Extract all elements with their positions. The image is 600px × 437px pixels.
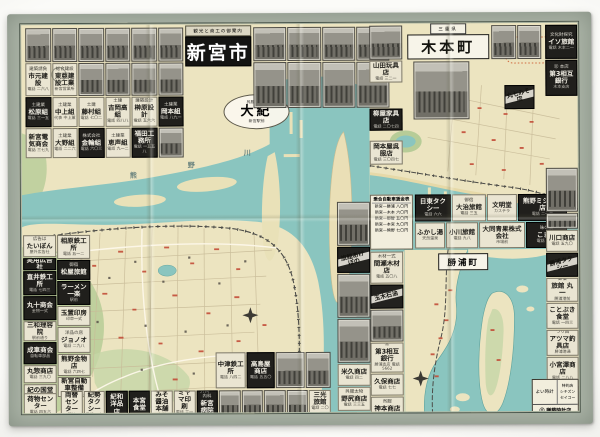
ad-tile: 外科・内科 新宮病院 電話 六八 (196, 390, 218, 413)
ad-tile: 岡本屋呉服店 電話 三〇四七 (370, 141, 403, 165)
ad-tile (322, 62, 355, 108)
ad-tile: 高島屋商店 電話 五五〇 (247, 352, 275, 388)
ad-tile: 文明堂 カステラ (487, 194, 517, 221)
ad-subtext: 自転車部品 (30, 354, 50, 359)
ad-title: 新宮電気商会 (28, 134, 50, 148)
ad-tile (158, 28, 184, 62)
daiki-bottom-text: 新宮駅前 (249, 118, 265, 124)
ad-tile (253, 27, 286, 61)
katsuura-town-label: 勝浦町 (438, 253, 488, 270)
pond (158, 265, 176, 276)
map-sheet: 勝浦町 観光と商工の御案内 新宮市 三重県 木本町 呉服・洋品 大紀 新宮駅前 … (7, 12, 593, 427)
ad-tile: ふかし湯 天然温泉 (415, 222, 445, 248)
ad-subtext: 電話 九八 (453, 236, 470, 241)
stamp-icon (51, 67, 66, 82)
ad-subtext: 電話 三一五 (28, 116, 49, 121)
ad-tile: 福田工務所 電話 一五五八 (132, 128, 158, 158)
ad-title: 小宮澤商店 (549, 361, 577, 375)
ad-title: 三和理容院 (25, 322, 54, 336)
ad-title: 玉木石油 (374, 291, 399, 303)
ad-subtext: 電話 二〇七四 (373, 124, 398, 129)
ad-subtext: 電話 三二一 (375, 76, 396, 81)
ad-tile (25, 28, 51, 62)
center-ad-strip-left: 旅館あけぼの 米久商店 電話 四二 呉服太物 野尻商店 電話 三三五 カバン 新… (337, 202, 371, 414)
ad-subtext: 電話 九一二 (107, 146, 128, 151)
bus-fare-table-ad: 乗合自動車賃金表 新宮—勝浦 八〇円 新宮—木本 六〇円 新宮—那智 五〇円 新… (370, 195, 413, 250)
ad-tile (369, 26, 402, 60)
ad-tile: 土建 吉岡高組 電話 四八八 (105, 97, 131, 127)
ad-subtext: 電話 一四三 (552, 321, 573, 326)
kimoto-title-block: 三重県 木本町 (407, 23, 489, 59)
ad-tile: ラーメン一楽 駅前 (57, 281, 90, 305)
ad-subtext: 勝浦港前 (554, 297, 570, 302)
ad-subtext: 新宮営業所 (55, 87, 75, 92)
contractor-ads-row2: 新宮電気商会 電話 三七九 土建業 大野組 電話 二二六 株式会社 金輪組 電話… (26, 128, 184, 159)
kimoto-photo-ads-right (491, 25, 541, 59)
ad-subtext: 電話 五一二 (63, 252, 84, 257)
ad-tile (337, 202, 370, 246)
ad-tile: 柳屋家具店 電話 二〇七四 (370, 109, 403, 131)
ad-kicker: 文化財探究 (550, 34, 573, 39)
kimoto-title-kicker: 三重県 (430, 23, 466, 34)
ad-subtext: 電話 二六八 (28, 87, 49, 92)
ad-title: ラーメン一楽 (59, 284, 88, 298)
map-content: 勝浦町 観光と商工の御案内 新宮市 三重県 木本町 呉服・洋品 大紀 新宮駅前 … (21, 23, 579, 413)
ad-tile: 小川旅館 電話 九八 (446, 222, 478, 248)
ad-tile: カバン 新宮鞄店 (338, 412, 371, 414)
ad-tile (78, 63, 104, 96)
ad-tile: ミヤマ印刷 電話 三一〇 (174, 390, 196, 413)
ad-tile: 土建業 松原組 電話 三一五 (25, 97, 51, 127)
ad-tile (306, 352, 331, 388)
ad-subtext: 金物一式 (32, 309, 48, 314)
ad-tile: 日東タクシー 電話 六六 (415, 194, 451, 221)
ad-tile (287, 390, 309, 413)
ad-tile: 両替センター 駅前 (61, 391, 83, 413)
ad-subtext: 電話 六四七 (64, 370, 85, 375)
ad-subtext: 駅前通り (32, 336, 48, 341)
ad-subtext: 電話 五五〇 (250, 375, 271, 380)
ad-title: 紀勢タクシー (85, 392, 103, 413)
ad-title: 柳屋家具店 (372, 110, 401, 124)
ad-title: 旅館あけぼの (338, 250, 369, 270)
ad-title: 勝浦タクシー (547, 255, 577, 274)
ad-subtext: 電話 五六六 (134, 119, 155, 124)
ad-tile (105, 28, 131, 62)
ad-tile: 直井鉄工所 電話 七四三 (23, 271, 56, 295)
ad-subtext: 電話 二九八 (63, 344, 84, 349)
watch-shop-corner-ad: よい時計 特約店 シチズン セイコー ㊂ 謙藤時計店 (532, 379, 579, 413)
ad-tile: 紀和洋品店 (106, 391, 128, 413)
kimoto-diagonal-ad: 丸七みそ店 (504, 85, 534, 109)
ad-kicker: 外科・内科 (198, 390, 216, 400)
ad-tile (337, 274, 370, 318)
ad-kicker: 土建 (113, 100, 122, 105)
contractor-ads-row: 土建業 松原組 電話 三一五 土建業 中上組 代表 中上薫 土建 藤村組 電話 … (25, 97, 183, 128)
ad-tile (491, 25, 516, 59)
ad-kicker: 御宿 (69, 264, 78, 269)
map-frame: 勝浦町 観光と商工の御案内 新宮市 三重県 木本町 呉服・洋品 大紀 新宮駅前 … (19, 21, 581, 415)
ad-kicker: ㊂ (385, 344, 390, 349)
publisher-line: ㊂ 謙藤時計店 (533, 404, 578, 413)
ad-tile: 久保商店 電話 七七 (371, 374, 404, 396)
ad-tile (131, 28, 157, 62)
bottom-ad-cluster: 中津鉄工所 電話 八四二 高島屋商店 電話 五五〇 (216, 352, 331, 389)
river-label-char: 川 (244, 148, 251, 158)
ad-kicker: 建築請負 (29, 68, 47, 73)
ad-subtext: 勝浦港通 (555, 350, 571, 355)
river-label-char: 熊 (130, 171, 137, 181)
ad-tile: 広告は たいぼん 屋外広告社 (23, 235, 56, 257)
ad-subtext: 印章一式 (66, 317, 82, 322)
ad-tile: 土建業 恵声組 電話 九一二 (105, 128, 131, 158)
ad-subtext: 電話 五九〇 (551, 242, 572, 247)
ad-tile: 旅館あけぼの (337, 247, 370, 273)
ad-subtext: 電話 四八八 (107, 119, 128, 124)
ad-title: 山田玩具店 (371, 62, 400, 76)
ad-subtext: 電話 四五六 (30, 410, 51, 413)
ad-subtext: 屋外広告社 (30, 250, 50, 255)
ad-tile: 呉服太物 野尻商店 電話 三三五 (338, 387, 371, 411)
ad-subtext: 電話 三五 (460, 211, 477, 216)
ad-tile (131, 63, 157, 96)
ad-kicker: 土建業 (58, 135, 72, 140)
ad-subtext: 勝浦支店 電話5662 (373, 362, 402, 371)
ad-tile: 成車商会 自転車部品 (24, 342, 57, 364)
ad-tile: 熊野金物店 電話 六四七 (58, 354, 91, 376)
ad-tile: 三和理容院 駅前通り (23, 321, 56, 341)
ad-subtext: 電話 五〇八 (376, 275, 397, 280)
ad-kicker: 土建業 (58, 104, 72, 109)
left-ad-column-a: 広告は たいぼん 屋外広告社 実用広告社 直井鉄工所 電話 七四三 丸十商会 金… (23, 235, 57, 391)
shingu-title-block: 観光と商工の御案内 新宮市 (185, 25, 251, 66)
ad-subtext: 電話 七四三 (29, 288, 50, 293)
ad-tile (322, 27, 355, 61)
ad-kicker: 株式会社 (82, 135, 100, 140)
ad-tile: 土建業 大野組 電話 二二六 (52, 128, 78, 158)
ad-subtext: 電話 一五五八 (134, 145, 156, 154)
ad-tile: 御宿 大治旅館 電話 三五 (452, 194, 486, 221)
middle-ad-band-row1: 日東タクシー 電話 六六 御宿 大治旅館 電話 三五 文明堂 カステラ 熊野ミシ… (415, 194, 567, 222)
ad-title: ミヤマ印刷 (176, 390, 194, 410)
ad-subtext: 電話 四七五 (377, 412, 398, 413)
ad-subtext: 電話 三三五 (344, 402, 365, 407)
katsuura-map-canvas (404, 249, 547, 413)
ad-kicker: 土建業 (31, 104, 45, 109)
ad-tile (219, 390, 241, 413)
ad-tile (370, 310, 403, 342)
ad-subtext: 電話 三〇四七 (374, 157, 399, 162)
bottom-left-corner-ad: 荷物センター 電話 四五六 (24, 393, 57, 413)
ad-subtext: 電話 八九一 (160, 115, 181, 120)
ad-title: 本宮食堂 (131, 398, 149, 412)
ad-subtext: 代表 中上薫 (54, 116, 75, 121)
ad-tile: 丸十商会 金物一式 (23, 296, 56, 320)
ad-kicker: つり具 (556, 331, 570, 336)
ad-tile: 実用広告社 (23, 258, 56, 270)
ad-kicker: 呉服 (383, 400, 392, 405)
ad-title: 市元建設 (27, 73, 49, 87)
ad-tile: 丸惣商店 電話 三九〇 (24, 365, 57, 383)
ad-tile: 新宮電気商会 電話 三七九 (26, 128, 52, 158)
shingu-title-kicker: 観光と商工の御案内 (185, 25, 251, 36)
ad-tile: 中津鉄工所 電話 八四二 (216, 352, 246, 388)
shingu-title: 新宮市 (185, 36, 251, 66)
ad-tile: ことぶき食堂 電話 一四三 (546, 303, 578, 329)
ad-subtext: 木本支店 (553, 85, 569, 90)
ad-tile (287, 27, 320, 61)
ad-subtext: カステラ (494, 209, 510, 214)
left-ad-column-b: 相原鉄工所 電話 五一二 御宿 松屋旅館 ラーメン一楽 駅前 玉置印房 印章一式… (57, 235, 91, 391)
ad-title: 新宮自動車整備 (60, 378, 89, 392)
ad-tile: 御宿 旅館 丸一 勝浦港前 (546, 278, 578, 302)
ad-kicker: 洋品の店 (65, 332, 83, 337)
ad-subtext: 電話 六〇三 (81, 147, 102, 152)
ad-tile (241, 390, 263, 413)
ad-kicker: 御宿 (464, 199, 473, 204)
ad-subtext: 電話 二二六 (54, 147, 75, 152)
ad-tile (264, 390, 286, 413)
center-ad-strip-right: 木材一式 間瀬木材店 電話 五〇八 玉木石油 ㊂ 第3相互銀行 勝浦支店 電話5… (370, 252, 404, 414)
ad-tile: 荷物センター 電話 四五六 (24, 393, 57, 413)
ad-subtext: 電話 二〇一 (311, 406, 329, 413)
ad-tile: 洋品の店 ジョノオ 電話 二九八 (57, 327, 90, 353)
ad-tile (78, 28, 104, 62)
ad-tile: みそ醤油本舗 丸新 (151, 391, 173, 414)
ad-subtext: 電話 七〇二 (81, 116, 102, 121)
ad-tile: 山田玩具店 電話 三二一 (369, 61, 402, 83)
ad-title: 熊野金物店 (60, 356, 89, 370)
bottom-ad-row: 両替センター 駅前 紀勢タクシー 電話 一六 紀和洋品店 本宮食堂 みそ醤油本舗… (61, 390, 331, 413)
fare-table-rows: 新宮—勝浦 八〇円 新宮—木本 六〇円 新宮—那智 五〇円 新宮—本宮 九〇円 … (375, 204, 408, 234)
ad-title: 荷物センター (26, 396, 55, 410)
ad-tile: 土建業 岡本組 電話 八九一 (158, 97, 184, 127)
katsuura-inset: 勝浦町 (404, 249, 547, 413)
ad-subtext: 電話 七七 (379, 386, 396, 391)
ad-subtext: 駅前 (70, 298, 78, 303)
ad-kicker: 呉服太物 (345, 390, 363, 395)
top-photo-ads-left (25, 28, 183, 63)
ad-tile (52, 28, 78, 62)
ad-tile: 御宿 松屋旅館 (57, 260, 90, 280)
ad-tile: 丸七みそ店 (504, 85, 534, 109)
ad-tile: ㊂ 本店 第3相互銀行 木本支店 (545, 60, 577, 96)
ad-kicker: 木材一式 (378, 256, 396, 261)
kimoto-side-ads: 山田玩具店 電話 三二一 柳屋家具店 電話 二〇七四 岡本屋呉服店 電話 三〇四… (369, 26, 403, 165)
ad-tile (517, 25, 542, 59)
ad-tile (288, 62, 321, 108)
ad-title: 高島屋商店 (249, 361, 273, 375)
ad-subtext: 電話 三一〇 (176, 410, 194, 413)
right-ad-column: 文化財探究 イソ旅館 電話 木本二一 ㊂ 本店 第3相互銀行 木本支店 川口商店… (545, 25, 579, 406)
ad-tile (105, 63, 131, 96)
ad-tile (158, 128, 184, 158)
corner-ad-left-text: よい時計 (533, 380, 558, 404)
ad-tile (276, 352, 305, 388)
ad-subtext: 電話 六六 (424, 213, 441, 218)
ad-tile: 紀勢タクシー 電話 一六 (83, 391, 105, 413)
ad-subtext: 電話 三九〇 (30, 375, 51, 380)
river-label-char: 野 (188, 160, 195, 170)
ad-title: 中津鉄工所 (218, 361, 244, 375)
ad-title: みそ醤油本舗 (153, 392, 171, 413)
ad-tile: 三光旅館 電話 二〇一 (309, 390, 331, 413)
ad-tile: 建築請負 市元建設 電話 二六八 (25, 63, 51, 96)
ad-tile: 大同青果株式会社 市場前 (479, 222, 525, 248)
ad-title: 直井鉄工所 (25, 274, 54, 288)
ad-title: 大同青果株式会社 (481, 226, 523, 240)
ad-tile: 玉木石油 (370, 285, 403, 309)
ad-kicker: 土建業 (111, 134, 125, 139)
ad-tile: 勝浦タクシー (546, 253, 578, 277)
ad-tile: 建築設計 榊原設計 電話 五六六 (131, 97, 157, 127)
ad-title: ことぶき食堂 (548, 306, 576, 320)
ad-title: 実用広告社 (25, 258, 54, 270)
ad-tile: ㊂ 第3相互銀行 勝浦支店 電話5662 (371, 343, 404, 373)
ad-tile (546, 168, 578, 212)
ad-tile: 玉置印房 印章一式 (57, 306, 90, 326)
ad-tile: 文化財探究 イソ旅館 電話 木本二一 (545, 25, 577, 59)
ad-title: 松屋旅館 (61, 269, 87, 276)
ad-tile: つり具 アツマ釣具店 勝浦港通 (546, 330, 578, 356)
ad-title: 丸七みそ店 (505, 88, 533, 107)
ad-subtext: 天然温泉 (422, 237, 438, 242)
ad-tile: 呉服 神本商店 電話 四七五 (371, 397, 404, 414)
ad-title: 両替センター (63, 392, 81, 413)
kimoto-title: 木本町 (407, 34, 489, 59)
ad-kicker: 御宿 (558, 278, 567, 283)
ad-title: 第3相互銀行 (373, 348, 402, 362)
ad-tile: 米久商店 電話 四二 (338, 364, 371, 386)
shingu-ads-row2: 建築請負 市元建設 電話 二六八 総合建設 東亜建設工業 新宮営業所 (25, 63, 183, 97)
ad-kicker: 土建 (87, 104, 96, 109)
kimoto-big-photo-ad (413, 61, 469, 119)
ad-tile (337, 319, 370, 363)
ad-title: 岡本屋呉服店 (372, 143, 401, 157)
ad-kicker: 広告は (33, 238, 47, 243)
ad-tile: 相原鉄工所 電話 五一二 (57, 235, 90, 259)
ad-title: 新宮病院 (198, 400, 216, 413)
ad-tile: 土建 藤村組 電話 七〇二 (78, 97, 104, 127)
ad-subtext: 電話 三七九 (28, 148, 49, 153)
ad-tile (253, 62, 286, 108)
ad-tile: 木材一式 間瀬木材店 電話 五〇八 (370, 252, 403, 284)
ad-subtext: 電話 八四二 (220, 375, 241, 380)
ad-title: カバン (340, 412, 369, 414)
ad-tile: 株式会社 金輪組 電話 六〇三 (79, 128, 105, 158)
ad-subtext: 市場前 (496, 240, 508, 245)
ad-tile (158, 63, 184, 96)
ad-subtext: 電話 木本二一 (549, 45, 574, 50)
screenshot-root: { "colors":{"paper":"#ece4c0","water":"#… (0, 0, 600, 437)
ad-title: 紀和洋品店 (108, 394, 126, 413)
ad-subtext: 電話 四二 (346, 376, 363, 381)
middle-ad-band-row2: ふかし湯 天然温泉 小川旅館 電話 九八 大同青果株式会社 市場前 味の店 こま… (415, 222, 567, 249)
ad-tile: 土建業 中上組 代表 中上薫 (52, 97, 78, 127)
ad-kicker: ㊂ 本店 (554, 66, 569, 71)
ad-title: 相原鉄工所 (59, 238, 88, 252)
corner-ad-right-text: 特約店 シチズン セイコー (557, 380, 577, 404)
ad-tile: 川口商店 電話 五九〇 (546, 230, 578, 252)
ad-kicker: 土建業 (164, 103, 178, 108)
ad-tile: 本宮食堂 (128, 391, 150, 414)
ad-kicker: 建築設計 (135, 100, 153, 105)
ad-tile (546, 213, 578, 229)
